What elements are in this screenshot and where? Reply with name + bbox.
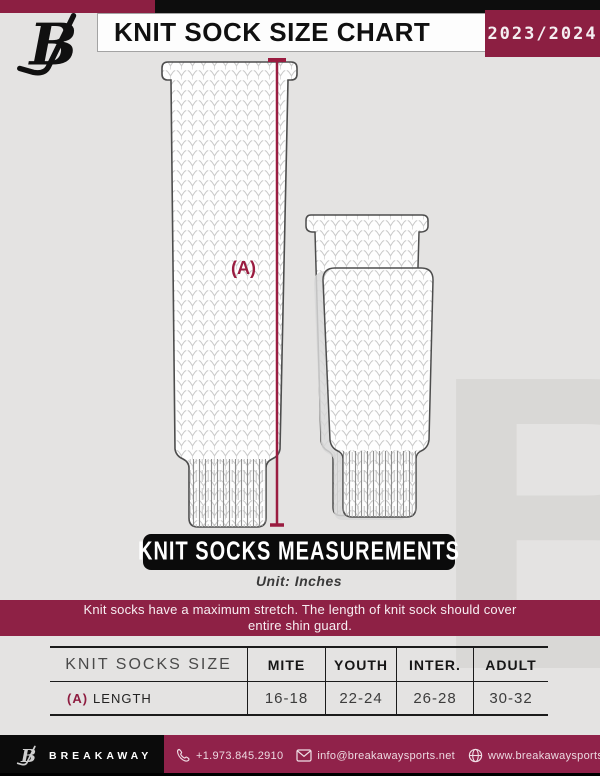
table-header-mite: MITE: [247, 648, 325, 682]
brand-logo-icon: B: [8, 12, 96, 76]
title-bar: KNIT SOCK SIZE CHART: [97, 13, 489, 52]
table-header-inter: INTER.: [396, 648, 473, 682]
unit-note: Unit: Inches: [143, 573, 455, 589]
size-chart-page: B KNIT SOCK SIZE CHART 2023/2024 B: [0, 0, 600, 776]
phone-icon: [176, 748, 191, 763]
length-dimension-label: LENGTH: [93, 691, 152, 706]
footer-phone-text: +1.973.845.2910: [196, 750, 283, 762]
dimension-label-A: (A): [231, 258, 256, 278]
measurements-banner-title: KNIT SOCKS MEASUREMENTS: [138, 537, 460, 567]
footer-website-text: www.breakawaysports.net: [488, 750, 600, 762]
footer-brand-logo-icon: B: [14, 745, 42, 766]
size-table: KNIT SOCKS SIZE MITE YOUTH INTER. ADULT …: [50, 646, 548, 716]
globe-icon: [468, 748, 483, 763]
table-header-size: KNIT SOCKS SIZE: [50, 648, 247, 682]
length-value-inter: 26-28: [396, 682, 473, 714]
sock-diagram: (A): [0, 0, 600, 600]
footer: B BREAKAWAY +1.973.845.2910 info@breakaw…: [0, 735, 600, 776]
table-row-length-label: (A) LENGTH: [50, 682, 247, 714]
season-label: 2023/2024: [487, 24, 597, 44]
table-header-adult: ADULT: [473, 648, 548, 682]
email-icon: [296, 749, 312, 762]
footer-email: info@breakawaysports.net: [296, 749, 455, 762]
page-title: KNIT SOCK SIZE CHART: [114, 17, 430, 48]
season-badge: 2023/2024: [485, 10, 600, 57]
length-value-adult: 30-32: [473, 682, 548, 714]
stretch-notice-banner: Knit socks have a maximum stretch. The l…: [0, 600, 600, 636]
length-dimension-prefix: (A): [67, 691, 88, 706]
footer-brand-block: B BREAKAWAY: [0, 735, 164, 776]
footer-email-text: info@breakawaysports.net: [317, 750, 455, 762]
footer-website: www.breakawaysports.net: [468, 748, 600, 763]
table-header-youth: YOUTH: [325, 648, 396, 682]
length-value-youth: 22-24: [325, 682, 396, 714]
footer-contacts: +1.973.845.2910 info@breakawaysports.net…: [176, 735, 600, 776]
measurements-banner: KNIT SOCKS MEASUREMENTS: [143, 534, 455, 570]
footer-brand-name: BREAKAWAY: [49, 750, 152, 762]
stretch-notice-text: Knit socks have a maximum stretch. The l…: [74, 602, 526, 634]
length-value-mite: 16-18: [247, 682, 325, 714]
footer-phone: +1.973.845.2910: [176, 748, 283, 763]
